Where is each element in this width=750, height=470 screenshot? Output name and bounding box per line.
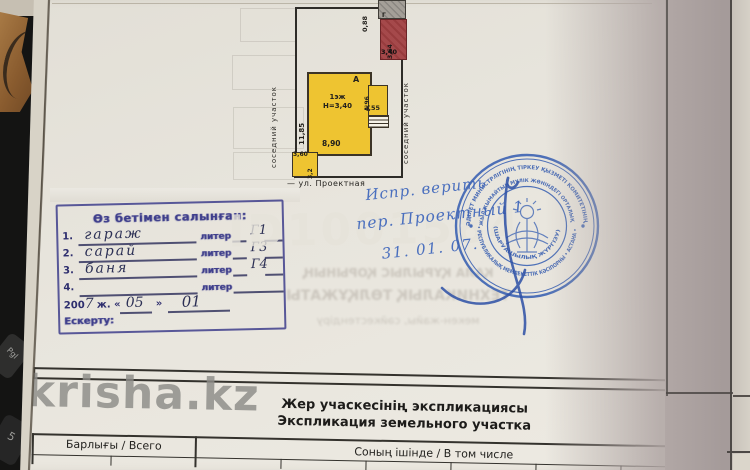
house-label: 1эж Н=3,40 [310, 93, 365, 111]
neighbor-label-right: соседний участок [402, 82, 410, 164]
row-number: 3. [63, 265, 74, 276]
house-height: Н=3,40 [323, 102, 352, 110]
house-dim-left: 11,85 [298, 123, 306, 145]
garage-dim-bottom: 3,40 [381, 48, 397, 56]
porch-steps [368, 115, 389, 128]
note-label: Ескерту: [64, 315, 114, 327]
date-day-handwritten: 01 [182, 292, 201, 310]
neighbor-plot-outline [240, 8, 296, 42]
house-storey: 1эж [330, 93, 346, 101]
neighbor-plot-outline [233, 107, 304, 149]
neighbor-plot-outline [232, 55, 296, 90]
annex-dim-bottom: 2,55 [364, 104, 380, 112]
page-fold-band [665, 0, 732, 470]
date-prefix: 200 [64, 300, 85, 311]
date-separator: » [156, 298, 163, 309]
house-dim-bottom: 8,90 [322, 139, 341, 148]
table-header-total: Барлығы / Всего [39, 437, 189, 453]
row-liter-handwritten: Г4 [251, 257, 268, 272]
adjacent-page-cell [733, 454, 750, 470]
neighbor-label-left: соседний участок [270, 86, 278, 168]
date-year-handwritten: 7 [85, 296, 94, 312]
row-name-handwritten: баня [85, 260, 129, 277]
adjacent-page-rule [733, 395, 750, 397]
row-name-handwritten: сарай [84, 243, 137, 260]
adjacent-page-rule [727, 451, 750, 453]
fold-crease-line [730, 0, 732, 470]
page-frame-right-line [666, 0, 668, 396]
document-photo: Pgl 5 Г 3,64 3,40 0,8 [0, 0, 750, 470]
bath-dim-side: 3,2 [307, 168, 314, 179]
bath-dim-top: 3,60 [293, 151, 308, 158]
row-number: 2. [63, 248, 74, 259]
shed-letter: Г [382, 12, 386, 19]
row-name-handwritten: гараж [84, 226, 143, 243]
page-edge-line [0, 0, 60, 470]
liter-label: литер [201, 283, 232, 294]
row-number: 4. [63, 282, 74, 293]
adjacent-page-strip [732, 0, 750, 470]
date-month-handwritten: 05 [126, 295, 144, 311]
page-fold-shadow [545, 0, 667, 470]
liter-label: литер [201, 249, 232, 260]
street-label: — ул. Проектная [287, 179, 365, 188]
neighbor-plot-outline [233, 152, 295, 180]
liter-label: литер [200, 232, 231, 243]
liter-label: литер [201, 266, 232, 277]
page-frame-corner-line [666, 392, 733, 394]
house-letter: А [353, 75, 359, 84]
date-separator: ж. « [97, 299, 121, 311]
row-number: 1. [62, 231, 73, 242]
plan-dim-top: 0,88 [361, 16, 369, 32]
